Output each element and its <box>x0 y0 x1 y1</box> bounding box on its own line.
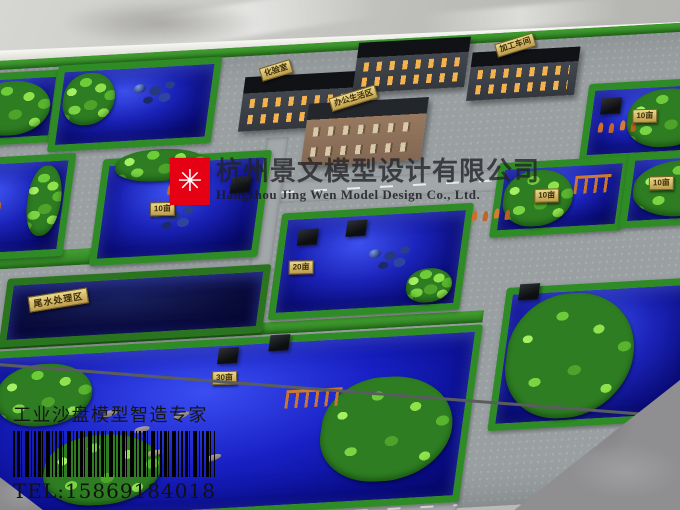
photo-of-sand-table-model: 化验室 加工车间 办公生活区 10亩 10亩 10亩 <box>0 0 680 510</box>
windows <box>310 142 414 157</box>
equipment-box <box>217 347 239 364</box>
aerator-pumps <box>133 84 146 94</box>
lit-windows <box>477 65 571 79</box>
equipment-box <box>345 220 367 237</box>
worker-figures <box>597 122 603 132</box>
crop-plants <box>59 71 118 126</box>
pond <box>47 56 223 152</box>
crop-plants <box>0 79 54 138</box>
equipment-box <box>518 283 540 300</box>
contact-block: 工业沙盘模型智造专家 TEL:15869184018 <box>13 401 228 503</box>
company-watermark: ✳ 杭州景文模型设计有限公司 Hangzhou Jing Wen Model D… <box>170 158 540 205</box>
pond-area-sign: 10亩 <box>632 109 657 124</box>
floor-reflection-smudge <box>60 0 260 46</box>
watermark-text-block: 杭州景文模型设计有限公司 Hangzhou Jing Wen Model Des… <box>216 158 540 203</box>
company-name-cn: 杭州景文模型设计有限公司 <box>216 158 540 186</box>
lit-windows <box>474 80 568 94</box>
pond <box>578 77 680 163</box>
crop-plants <box>22 164 66 237</box>
equipment-box <box>268 334 290 351</box>
factory-building <box>466 46 580 100</box>
windows <box>313 122 417 137</box>
pond-area-sign: 10亩 <box>649 176 674 191</box>
phone-number: TEL:15869184018 <box>13 479 228 503</box>
company-logo-icon: ✳ <box>170 158 210 205</box>
aerator-pumps <box>368 249 381 259</box>
pond-area-sign: 20亩 <box>289 260 314 275</box>
office-building <box>301 97 429 166</box>
equipment-box <box>600 97 622 114</box>
walkway-bridge <box>573 174 611 194</box>
crop-plants <box>497 289 642 421</box>
slogan-text: 工业沙盘模型智造专家 <box>13 401 228 427</box>
barcode <box>13 431 215 477</box>
lit-windows <box>361 72 458 86</box>
lit-windows <box>363 57 460 71</box>
company-name-en: Hangzhou Jing Wen Model Design Co., Ltd. <box>216 187 540 203</box>
equipment-box <box>297 228 319 245</box>
crop-plants <box>404 267 455 304</box>
